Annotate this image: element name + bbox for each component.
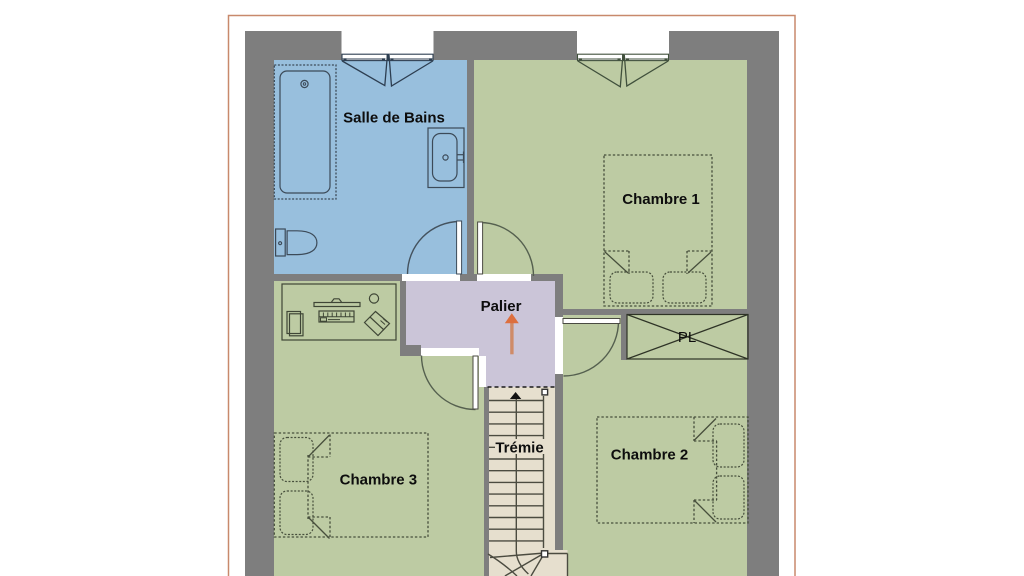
svg-text:Salle de Bains: Salle de Bains: [343, 110, 445, 127]
svg-text:Chambre 2: Chambre 2: [611, 446, 689, 463]
svg-text:Chambre 3: Chambre 3: [340, 471, 418, 488]
svg-text:Palier: Palier: [481, 298, 522, 315]
svg-text:Trémie: Trémie: [495, 440, 543, 457]
svg-text:PL: PL: [678, 329, 696, 346]
svg-text:Chambre 1: Chambre 1: [622, 191, 700, 208]
